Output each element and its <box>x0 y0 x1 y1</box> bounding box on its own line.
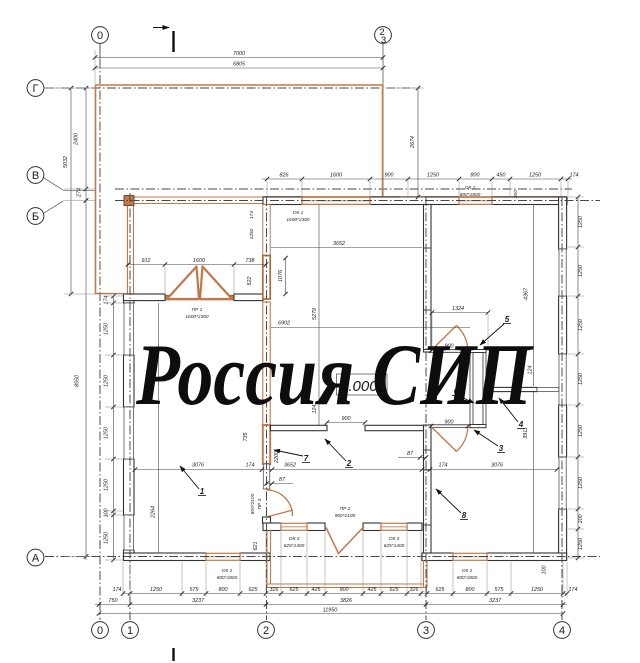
svg-text:174: 174 <box>246 463 255 469</box>
svg-text:1250: 1250 <box>578 538 584 550</box>
svg-text:912: 912 <box>142 258 151 264</box>
svg-text:ОК 3: ОК 3 <box>389 536 400 542</box>
svg-text:5: 5 <box>505 315 510 324</box>
svg-text:174: 174 <box>104 296 110 305</box>
svg-text:ПР 2: ПР 2 <box>340 506 351 512</box>
svg-text:5032: 5032 <box>63 156 69 168</box>
svg-text:3652: 3652 <box>284 463 296 469</box>
svg-text:625: 625 <box>436 587 446 593</box>
svg-text:7000: 7000 <box>233 51 245 57</box>
svg-text:800*1800: 800*1800 <box>457 575 478 581</box>
svg-text:Россия СИП: Россия СИП <box>135 327 534 424</box>
svg-text:87: 87 <box>279 477 286 483</box>
svg-text:625: 625 <box>249 587 259 593</box>
svg-text:ПР 1: ПР 1 <box>192 307 203 313</box>
svg-text:Б: Б <box>32 211 39 223</box>
svg-text:625*1400: 625*1400 <box>384 543 405 549</box>
svg-text:1250: 1250 <box>578 319 584 331</box>
svg-text:100: 100 <box>542 566 548 575</box>
svg-text:3: 3 <box>423 625 429 637</box>
svg-text:1: 1 <box>200 487 205 496</box>
svg-text:826: 826 <box>280 173 289 179</box>
svg-text:326: 326 <box>410 587 419 593</box>
svg-text:1600*2300: 1600*2300 <box>185 314 209 320</box>
svg-text:5279: 5279 <box>312 308 318 320</box>
svg-text:87: 87 <box>407 451 414 457</box>
svg-text:3652: 3652 <box>333 241 345 247</box>
svg-text:0: 0 <box>97 30 103 42</box>
svg-text:3237: 3237 <box>192 598 205 604</box>
svg-text:174: 174 <box>249 211 255 219</box>
svg-text:800*1800: 800*1800 <box>217 575 238 581</box>
svg-text:0: 0 <box>97 625 103 637</box>
svg-text:1250: 1250 <box>531 587 543 593</box>
svg-text:1250: 1250 <box>104 375 110 387</box>
svg-text:Г: Г <box>33 83 39 95</box>
svg-text:ОК 2: ОК 2 <box>222 568 233 574</box>
svg-text:425: 425 <box>368 587 378 593</box>
svg-text:3826: 3826 <box>340 598 352 604</box>
svg-text:800: 800 <box>466 587 475 593</box>
svg-text:1250: 1250 <box>427 173 439 179</box>
svg-text:1250: 1250 <box>529 173 541 179</box>
svg-text:900: 900 <box>340 587 349 593</box>
svg-text:1: 1 <box>127 625 133 637</box>
svg-text:1250: 1250 <box>578 477 584 489</box>
svg-text:3076: 3076 <box>192 463 204 469</box>
svg-text:1600: 1600 <box>193 258 205 264</box>
svg-text:8: 8 <box>462 511 467 520</box>
svg-text:ОК 3: ОК 3 <box>289 536 300 542</box>
svg-text:100: 100 <box>104 509 110 518</box>
svg-text:1324: 1324 <box>452 306 464 312</box>
svg-text:800*2100: 800*2100 <box>250 493 256 514</box>
svg-text:7: 7 <box>304 454 309 463</box>
svg-text:3: 3 <box>499 444 504 453</box>
svg-text:174: 174 <box>113 587 122 593</box>
svg-text:1250: 1250 <box>578 425 584 437</box>
svg-text:2: 2 <box>346 459 352 468</box>
svg-text:1076: 1076 <box>278 270 284 282</box>
svg-text:450: 450 <box>497 173 506 179</box>
svg-text:2: 2 <box>263 625 269 637</box>
svg-text:3911: 3911 <box>523 427 529 439</box>
svg-text:6902: 6902 <box>278 321 290 327</box>
svg-text:2674: 2674 <box>410 136 416 149</box>
svg-text:274: 274 <box>77 188 83 198</box>
svg-text:750: 750 <box>109 598 118 604</box>
svg-text:А: А <box>32 552 40 564</box>
svg-text:4367: 4367 <box>524 287 530 300</box>
svg-text:1600: 1600 <box>330 173 342 179</box>
svg-text:1250: 1250 <box>578 373 584 385</box>
svg-text:1250: 1250 <box>104 479 110 491</box>
svg-text:1250: 1250 <box>150 587 162 593</box>
svg-text:738: 738 <box>246 258 255 264</box>
svg-text:1250: 1250 <box>249 228 255 239</box>
svg-text:В: В <box>32 170 39 182</box>
svg-text:1250: 1250 <box>578 265 584 277</box>
svg-text:625: 625 <box>390 587 400 593</box>
svg-text:174: 174 <box>570 173 579 179</box>
svg-text:174: 174 <box>439 463 448 469</box>
svg-text:100: 100 <box>578 515 584 524</box>
svg-text:1250: 1250 <box>104 532 110 544</box>
svg-text:3: 3 <box>381 35 386 46</box>
svg-text:ОК 2: ОК 2 <box>465 185 476 191</box>
svg-text:2400: 2400 <box>74 133 80 146</box>
svg-text:800*1800: 800*1800 <box>460 192 481 198</box>
svg-text:1250: 1250 <box>104 427 110 439</box>
svg-text:3237: 3237 <box>489 598 502 604</box>
svg-text:326: 326 <box>270 587 279 593</box>
svg-text:11950: 11950 <box>323 608 338 614</box>
svg-text:735: 735 <box>243 432 249 442</box>
svg-text:522: 522 <box>247 277 253 286</box>
svg-text:1250: 1250 <box>104 323 110 335</box>
svg-text:900: 900 <box>385 173 394 179</box>
svg-text:ПР 3: ПР 3 <box>257 498 263 509</box>
svg-text:575: 575 <box>190 587 200 593</box>
svg-text:425: 425 <box>312 587 322 593</box>
svg-text:800: 800 <box>219 587 228 593</box>
svg-text:2264: 2264 <box>151 506 157 519</box>
svg-text:8550: 8550 <box>75 375 81 387</box>
svg-text:200: 200 <box>513 190 519 199</box>
svg-text:625*1400: 625*1400 <box>284 543 305 549</box>
svg-text:800: 800 <box>471 173 480 179</box>
svg-text:ОК 1: ОК 1 <box>293 210 304 216</box>
svg-text:174: 174 <box>569 587 578 593</box>
svg-text:1600*2300: 1600*2300 <box>286 217 310 223</box>
svg-text:575: 575 <box>495 587 505 593</box>
svg-text:621: 621 <box>253 542 259 551</box>
svg-text:ОК 2: ОК 2 <box>462 568 473 574</box>
svg-text:1250: 1250 <box>578 216 584 228</box>
svg-text:3076: 3076 <box>491 463 503 469</box>
svg-text:2200: 2200 <box>274 451 280 464</box>
svg-text:6805: 6805 <box>233 62 246 68</box>
svg-text:4: 4 <box>559 625 565 637</box>
svg-text:900*2100: 900*2100 <box>335 513 356 519</box>
svg-text:625: 625 <box>290 587 300 593</box>
